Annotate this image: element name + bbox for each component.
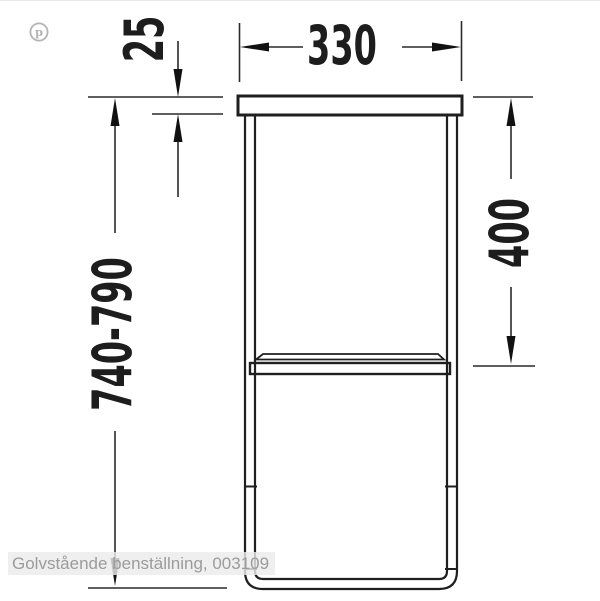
top-slab: [238, 96, 462, 115]
arrow-400-down: [507, 336, 516, 364]
frame-outer-contour: [245, 115, 457, 589]
frame-inner-contour: [255, 115, 447, 579]
arrow-400-up: [507, 98, 516, 126]
cross-rail: [250, 363, 450, 374]
dimension-label-top-width: 330: [307, 19, 377, 73]
pinterest-icon[interactable]: p: [29, 22, 49, 42]
pinterest-icon-glyph: p: [35, 25, 43, 39]
dimension-label-shelf-height: 400: [483, 198, 537, 268]
product-frame: [238, 96, 462, 589]
technical-drawing-canvas: 330 25 400 740-790 Golvstående benställn…: [0, 0, 600, 601]
arrow-25-down: [174, 69, 183, 97]
product-caption: Golvstående benställning, 003109: [8, 552, 275, 575]
foot-joint-ticks: [244, 487, 458, 570]
shelf-plate: [256, 354, 444, 360]
dimension-label-total-height: 740-790: [86, 257, 140, 411]
dimension-arrowheads: [111, 43, 516, 587]
arrow-330-left: [240, 43, 269, 52]
arrow-330-right: [432, 43, 461, 52]
arrow-25-up: [174, 114, 183, 142]
dimension-label-top-thickness: 25: [118, 16, 172, 63]
arrow-740-up: [111, 98, 120, 126]
